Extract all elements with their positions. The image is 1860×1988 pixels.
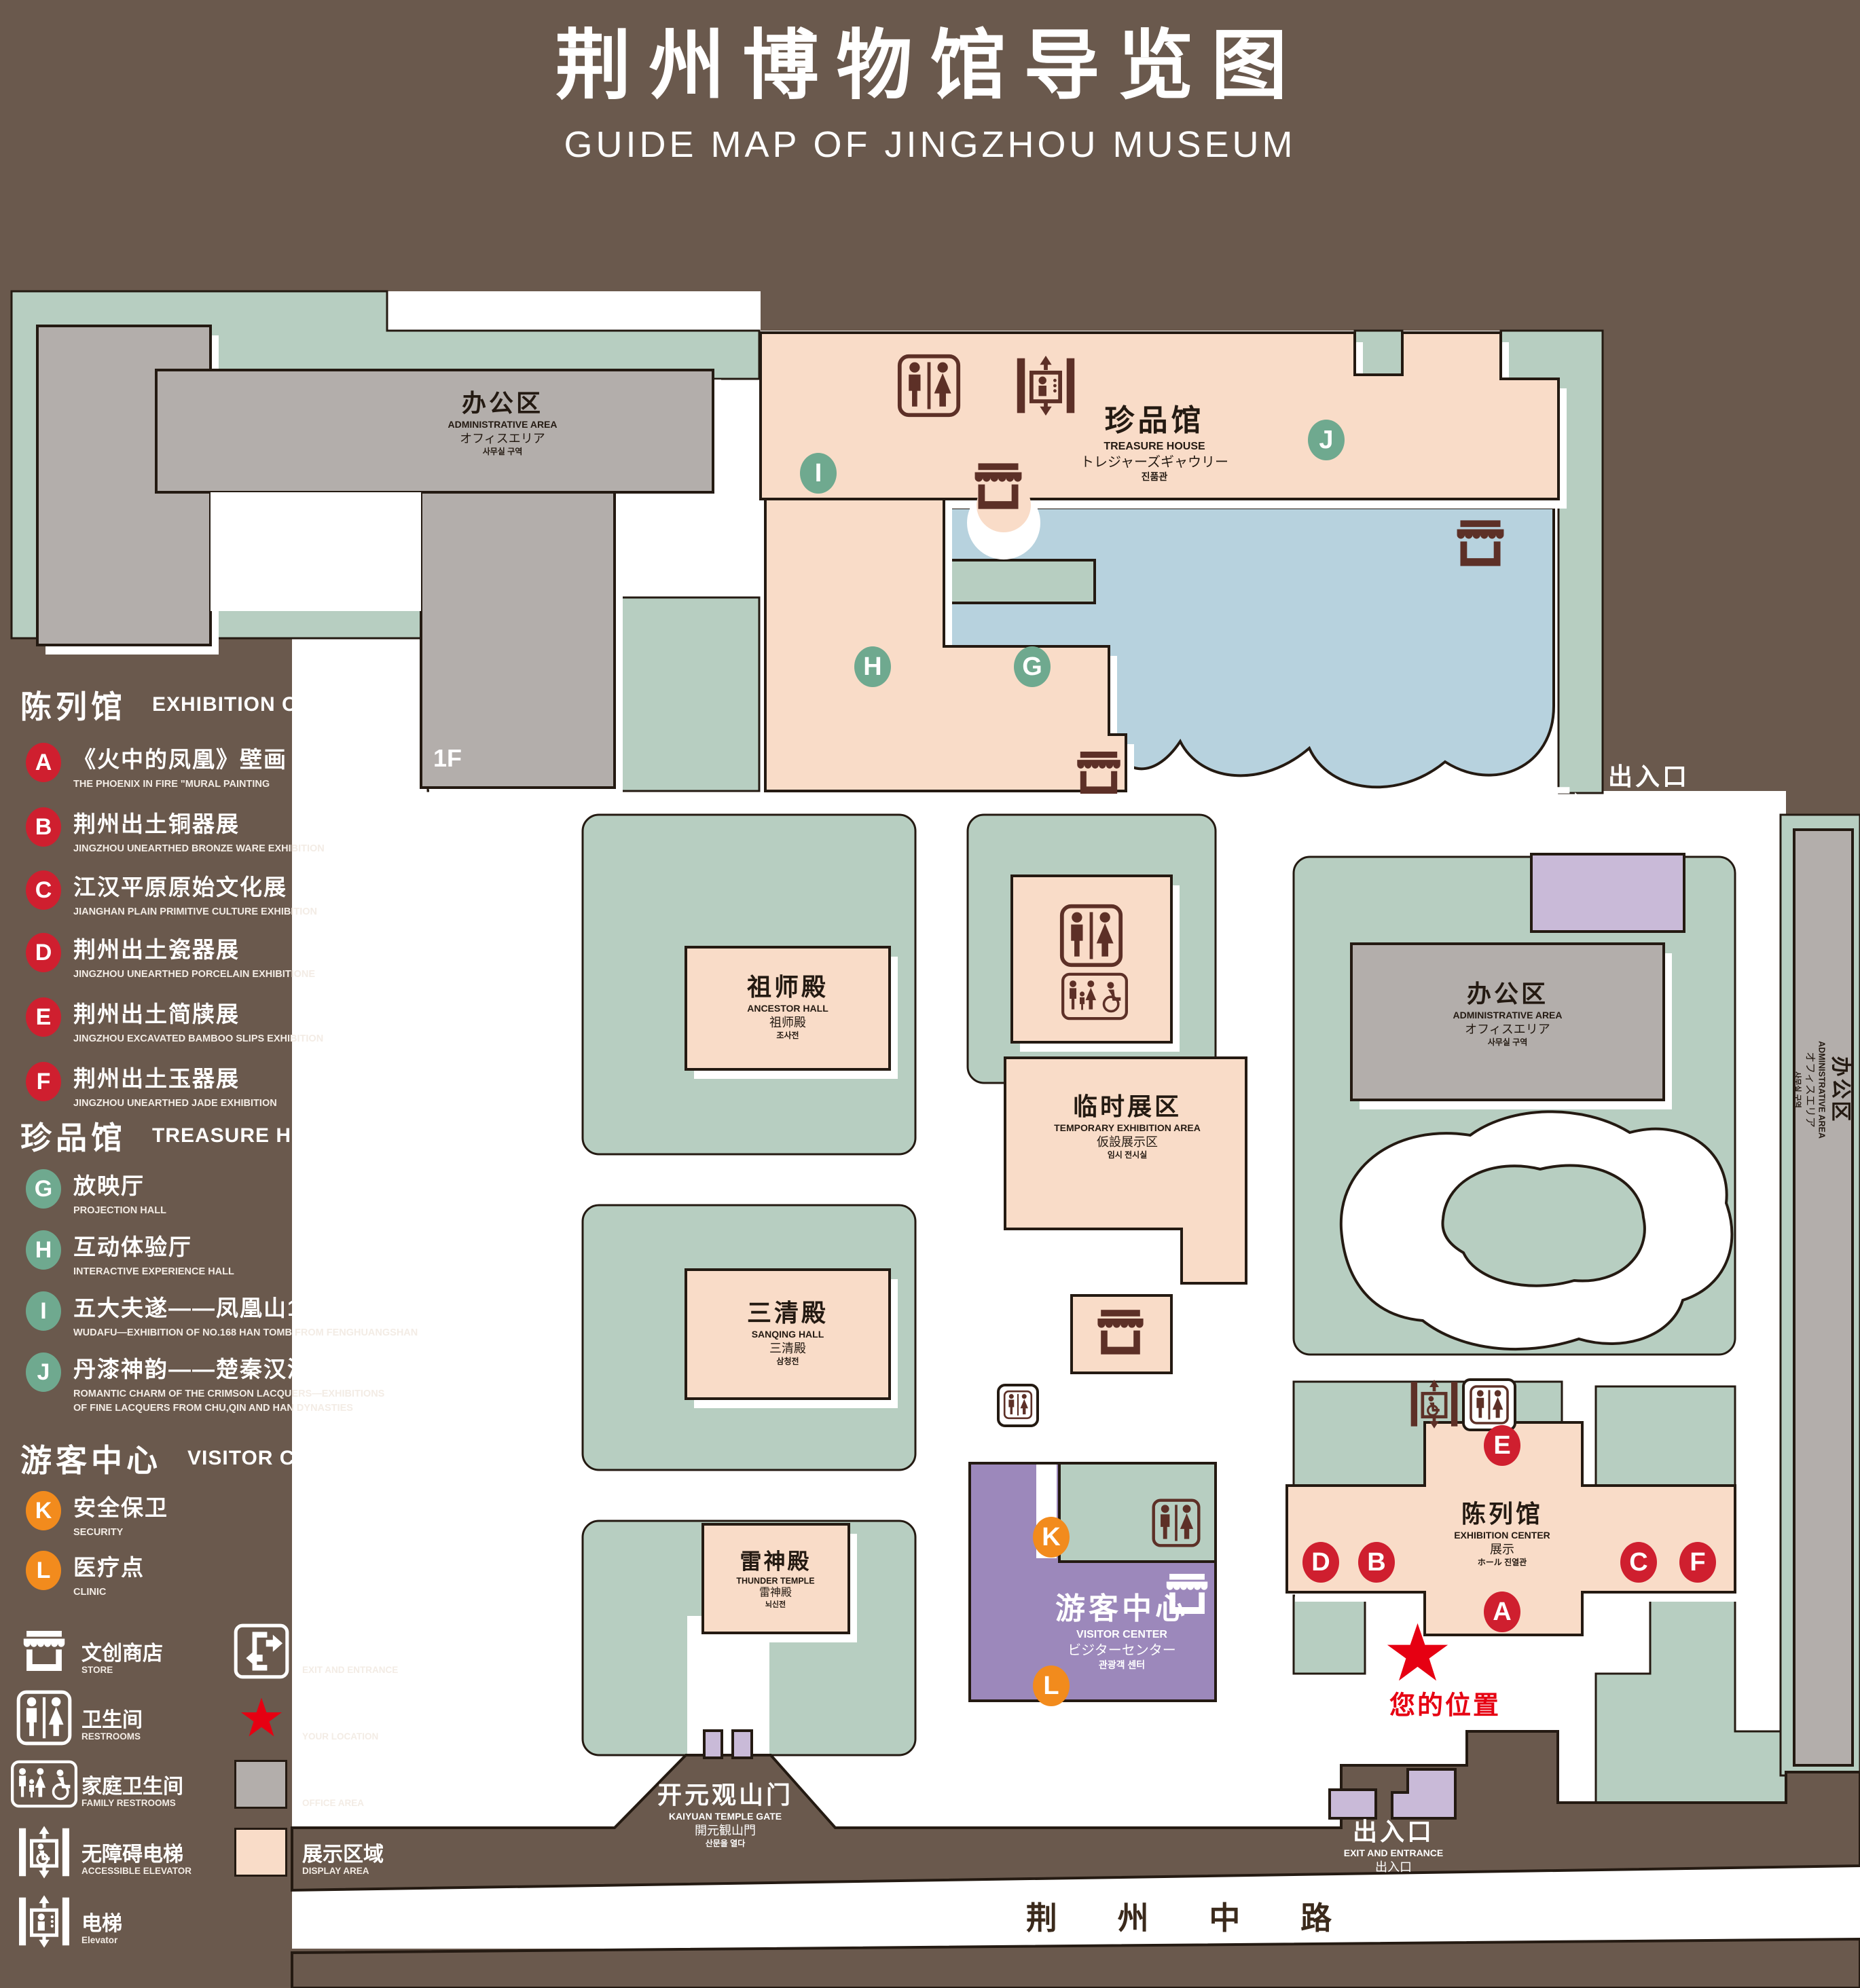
map-marker-d: D bbox=[1302, 1542, 1339, 1583]
floor-badge: 1F bbox=[433, 1171, 462, 1199]
map-marker-g: G bbox=[1014, 646, 1051, 687]
label-admin-far-right: 办公区 ADMINISTRATIVE AREA オフィスエリア 사무실 구역 bbox=[1793, 1041, 1853, 1139]
map-marker-a: A bbox=[1484, 1591, 1520, 1632]
legend-item-i: I 五大夫遂——凤凰山168号汉墓展 WUDAFU—EXHIBITION OF … bbox=[20, 1290, 489, 1340]
store-icon bbox=[1163, 1572, 1211, 1616]
legend-item-a: A 《火中的凤凰》壁画 THE PHOENIX IN FIRE "MURAL P… bbox=[20, 741, 489, 792]
floor-badge: 1-2F bbox=[433, 1354, 484, 1382]
legend-badge-a: A bbox=[26, 743, 61, 782]
map-marker-i: I bbox=[800, 453, 837, 494]
floor-badge: 1F bbox=[433, 1492, 462, 1521]
label-temporary-exhibition: 临时展区 TEMPORARY EXHIBITION AREA 仮設展示区 임시 … bbox=[1054, 1091, 1201, 1160]
display-area-swatch bbox=[234, 1828, 287, 1877]
legend-exit-label: 出入口 bbox=[302, 1636, 363, 1666]
floor-badge: 1F bbox=[433, 1552, 462, 1581]
exit-icon bbox=[1537, 783, 1590, 836]
legend-badge-j: J bbox=[26, 1352, 61, 1392]
store-icon bbox=[970, 461, 1026, 511]
legend-family-restroom-label: 家庭卫生间 bbox=[81, 1769, 183, 1799]
exit-bottom-building bbox=[1330, 1790, 1376, 1818]
office-area-swatch bbox=[234, 1760, 287, 1809]
label-exit-top-right: 出入口 EXIT AND ENTRANCE 出入口 출입구 bbox=[1599, 761, 1699, 830]
map-marker-k: K bbox=[1033, 1517, 1070, 1558]
legend-badge-g: G bbox=[26, 1169, 61, 1209]
legend-badge-b: B bbox=[26, 807, 61, 847]
location-star-icon bbox=[1385, 1621, 1450, 1685]
legend-item-h: H 互动体验厅 INTERACTIVE EXPERIENCE HALL 1F bbox=[20, 1229, 489, 1279]
elevator-icon bbox=[16, 1893, 73, 1950]
gate-pillar bbox=[733, 1731, 752, 1758]
legend-badge-h: H bbox=[26, 1230, 61, 1270]
restroom-icon bbox=[16, 1689, 73, 1746]
legend-item-f: F 荆州出土玉器展 JINGZHOU UNEARTHED JADE EXHIBI… bbox=[20, 1061, 489, 1111]
map-marker-e: E bbox=[1484, 1425, 1520, 1466]
elevator-icon bbox=[1013, 353, 1078, 418]
legend-item-j: J 丹漆神韵——楚秦汉漆器精品展 ROMANTIC CHARM OF THE C… bbox=[20, 1351, 489, 1416]
legend-location-label: 您的位置 bbox=[302, 1703, 384, 1733]
floor-badge: 1F bbox=[433, 809, 462, 837]
legend-accessible-elevator-label: 无障碍电梯 bbox=[81, 1837, 183, 1867]
map-marker-h: H bbox=[854, 646, 891, 687]
exit-top-building bbox=[1531, 854, 1684, 932]
map-marker-c: C bbox=[1620, 1542, 1657, 1583]
restroom-icon bbox=[896, 353, 962, 418]
legend-section-visitor-center: 游客中心 VISITOR CENTER bbox=[20, 1436, 367, 1481]
floor-badge: 2F bbox=[433, 1293, 462, 1321]
floor-badge: 1F bbox=[433, 1232, 462, 1260]
legend-office-area-label: 办公区域 bbox=[302, 1769, 384, 1799]
accessible-elevator-icon bbox=[16, 1824, 73, 1881]
legend-display-area-label: 展示区域 bbox=[302, 1837, 384, 1867]
label-your-location: 您的位置 bbox=[1389, 1685, 1501, 1722]
legend-item-b: B 荆州出土铜器展 JINGZHOU UNEARTHED BRONZE WARE… bbox=[20, 806, 489, 856]
map-marker-j: J bbox=[1308, 420, 1345, 460]
label-admin-top-left: 办公区 ADMINISTRATIVE AREA オフィスエリア 사무실 구역 bbox=[448, 388, 558, 457]
label-sanqing-hall: 三清殿 SANQING HALL 三清殿 삼청전 bbox=[747, 1297, 828, 1367]
page-subtitle: GUIDE MAP OF JINGZHOU MUSEUM bbox=[0, 124, 1860, 166]
family-restroom-icon bbox=[1061, 972, 1129, 1020]
legend-badge-e: E bbox=[26, 997, 61, 1037]
label-ancestor-hall: 祖师殿 ANCESTOR HALL 祖师殿 조사전 bbox=[747, 972, 828, 1041]
map-marker-f: F bbox=[1679, 1542, 1716, 1583]
restroom-icon bbox=[1469, 1384, 1510, 1425]
pond-island bbox=[947, 560, 1095, 603]
legend-section-treasure-house: 珍品馆 TREASURE HOUSE bbox=[20, 1113, 352, 1158]
floor-badge: 2F bbox=[433, 999, 462, 1027]
legend-section-exhibition-center: 陈列馆 EXHIBITION CENTER bbox=[20, 682, 369, 727]
map-canvas bbox=[0, 0, 1860, 1988]
family-restroom-icon bbox=[10, 1760, 78, 1808]
label-treasure-house: 珍品馆 TREASURE HOUSE トレジャーズギャウリー 진품관 bbox=[1080, 402, 1228, 483]
legend-item-k: K 安全保卫 SECURITY 1F bbox=[20, 1490, 489, 1540]
map-marker-b: B bbox=[1358, 1542, 1395, 1583]
legend-badge-f: F bbox=[26, 1062, 61, 1101]
restroom-icon bbox=[1151, 1498, 1201, 1548]
floor-badge: 1F bbox=[433, 744, 462, 773]
page-title: 荆州博物馆导览图 bbox=[0, 4, 1860, 114]
page-header: 荆州博物馆导览图 GUIDE MAP OF JINGZHOU MUSEUM bbox=[0, 0, 1860, 166]
legend-item-l: L 医疗点 CLINIC 1F bbox=[20, 1549, 489, 1600]
legend-item-c: C 江汉平原原始文化展 JIANGHAN PLAIN PRIMITIVE CUL… bbox=[20, 869, 489, 919]
floor-badge: 2F bbox=[433, 1063, 462, 1092]
legend-item-d: D 荆州出土瓷器展 JINGZHOU UNEARTHED PORCELAIN E… bbox=[20, 932, 489, 982]
map-marker-l: L bbox=[1033, 1665, 1070, 1706]
floor-badge: 2F bbox=[433, 934, 462, 963]
label-kaiyuan-gate: 开元观山门 KAIYUAN TEMPLE GATE 開元観山門 산문을 열다 bbox=[657, 1780, 793, 1849]
legend-elevator-label: 电梯 bbox=[81, 1907, 122, 1936]
label-exhibition-center: 陈列馆 EXHIBITION CENTER 展示 ホール 진열관 bbox=[1454, 1498, 1550, 1568]
restroom-icon bbox=[1059, 903, 1124, 968]
legend-item-g: G 放映厅 PROJECTION HALL 1F bbox=[20, 1168, 489, 1218]
label-thunder-temple: 雷神殿 THUNDER TEMPLE 雷神殿 뇌신전 bbox=[736, 1547, 814, 1610]
exit-icon bbox=[233, 1623, 290, 1680]
floor-badge: 1F bbox=[433, 872, 462, 900]
accessible-elevator-icon bbox=[1408, 1378, 1461, 1431]
garden bbox=[1341, 1111, 1732, 1349]
label-admin-right: 办公区 ADMINISTRATIVE AREA オフィスエリア 사무실 구역 bbox=[1453, 978, 1563, 1048]
admin-far-right-building bbox=[1794, 830, 1853, 1765]
legend-restroom-label: 卫生间 bbox=[81, 1703, 143, 1733]
store-icon bbox=[1073, 750, 1125, 796]
label-road: 荆 州 中 路 bbox=[1026, 1894, 1357, 1938]
legend-badge-k: K bbox=[26, 1491, 61, 1530]
restroom-icon bbox=[1003, 1390, 1033, 1420]
legend-item-e: E 荆州出土简牍展 JINGZHOU EXCAVATED BAMBOO SLIP… bbox=[20, 996, 489, 1046]
legend-badge-d: D bbox=[26, 933, 61, 972]
admin-courtyard bbox=[211, 492, 421, 611]
label-exit-bottom: 出入口 EXIT AND ENTRANCE 出入口 출입구 bbox=[1344, 1816, 1444, 1885]
legend-badge-c: C bbox=[26, 870, 61, 910]
legend-badge-l: L bbox=[26, 1551, 61, 1590]
gate-pillar bbox=[704, 1731, 722, 1758]
store-icon bbox=[20, 1629, 69, 1673]
legend-store-label: 文创商店 bbox=[81, 1636, 163, 1666]
store-icon bbox=[1093, 1308, 1148, 1357]
guide-map: 荆州博物馆导览图 GUIDE MAP OF JINGZHOU MUSEUM 办公… bbox=[0, 0, 1860, 1988]
store-icon bbox=[1453, 518, 1508, 568]
legend-badge-i: I bbox=[26, 1291, 61, 1331]
location-star-icon bbox=[240, 1696, 283, 1739]
